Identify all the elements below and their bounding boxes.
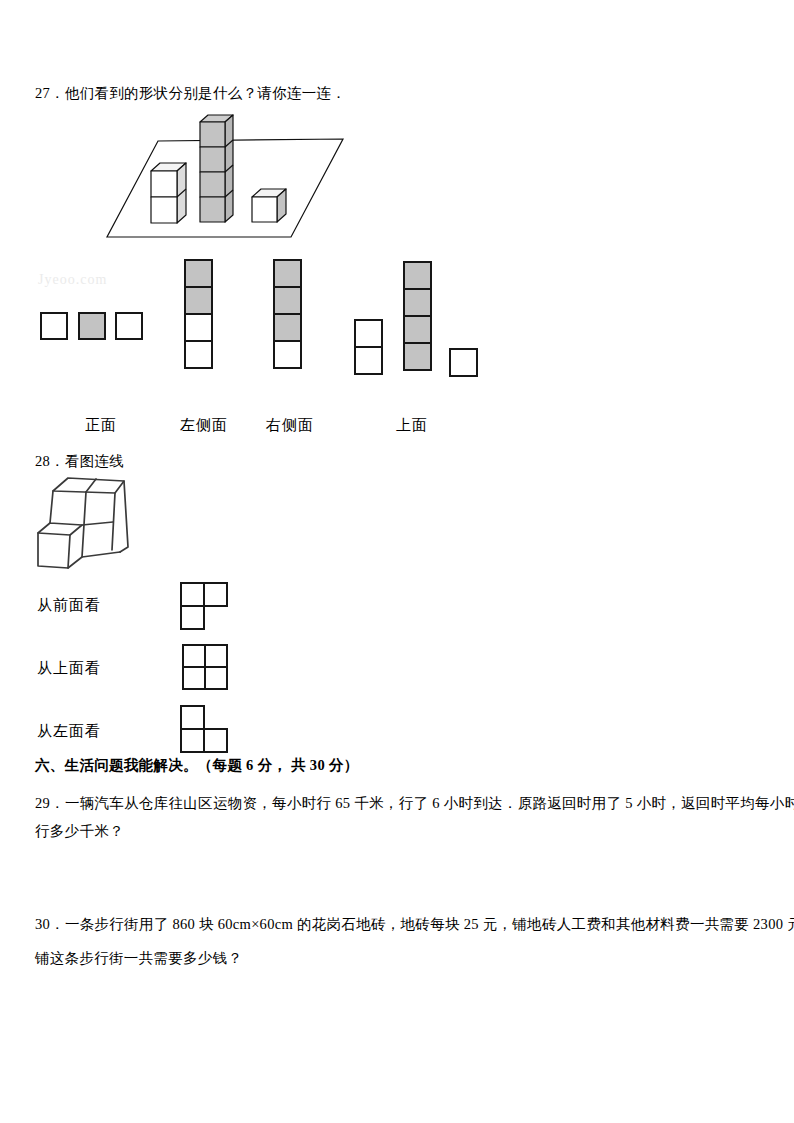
label-top: 上面	[396, 416, 428, 435]
grid-cell	[203, 582, 228, 607]
stack-middle-4	[200, 115, 233, 222]
question-29: 29．一辆汽车从仓库往山区运物资，每小时行 65 千米，行了 6 小时到达．原路…	[35, 789, 794, 845]
grid-cell	[449, 348, 478, 377]
question-30-line-2: 铺这条步行街一共需要多少钱？	[35, 941, 794, 975]
grid-cell	[204, 666, 228, 690]
question-29-line-1: 29．一辆汽车从仓库往山区运物资，每小时行 65 千米，行了 6 小时到达．原路…	[35, 789, 794, 817]
grid-cell	[273, 286, 302, 315]
section-6-heading: 六、生活问题我能解决。（每题 6 分， 共 30 分）	[35, 756, 358, 775]
grid-cell	[273, 340, 302, 369]
label-left-side: 左侧面	[180, 416, 228, 435]
grid-cell	[184, 313, 213, 342]
grid-cell	[182, 644, 206, 668]
grid-cell	[403, 261, 432, 290]
grid-cell	[184, 340, 213, 369]
grid-cell	[115, 312, 143, 340]
question-27-title: 27．他们看到的形状分别是什么？请你连一连．	[35, 84, 346, 103]
grid-cell	[180, 582, 205, 607]
question-28-title: 28．看图连线	[35, 452, 124, 471]
grid-cell	[273, 313, 302, 342]
question-29-line-2: 行多少千米？	[35, 817, 794, 845]
grid-cell	[403, 342, 432, 371]
stack-left-2	[151, 163, 186, 223]
grid-cell	[180, 728, 205, 753]
grid-cell	[184, 286, 213, 315]
grid-cell	[180, 605, 205, 630]
grid-cell	[182, 666, 206, 690]
grid-cell	[403, 288, 432, 317]
q28-step-solid-sketch	[38, 471, 134, 583]
label-front: 正面	[85, 416, 117, 435]
worksheet-page: Jyeoo.com 27．他们看到的形状分别是什么？请你连一连．	[0, 0, 794, 1123]
watermark: Jyeoo.com	[38, 272, 107, 288]
grid-cell	[40, 312, 68, 340]
grid-cell	[273, 259, 302, 288]
grid-cell	[184, 259, 213, 288]
grid-cell	[403, 315, 432, 344]
grid-cell	[78, 312, 106, 340]
question-30: 30．一条步行街用了 860 块 60cm×60cm 的花岗石地砖，地砖每块 2…	[35, 907, 794, 975]
grid-cell	[354, 346, 383, 375]
label-view-from-top: 从上面看	[37, 659, 101, 678]
cube-right-1	[252, 189, 286, 222]
label-view-from-left: 从左面看	[37, 722, 101, 741]
grid-cell	[180, 705, 205, 730]
label-right-side: 右侧面	[266, 416, 314, 435]
q27-cube-stacks-figure	[103, 110, 348, 242]
label-view-from-front: 从前面看	[37, 596, 101, 615]
grid-cell	[354, 319, 383, 348]
grid-cell	[204, 644, 228, 668]
grid-cell	[203, 728, 228, 753]
question-30-line-1: 30．一条步行街用了 860 块 60cm×60cm 的花岗石地砖，地砖每块 2…	[35, 907, 794, 941]
